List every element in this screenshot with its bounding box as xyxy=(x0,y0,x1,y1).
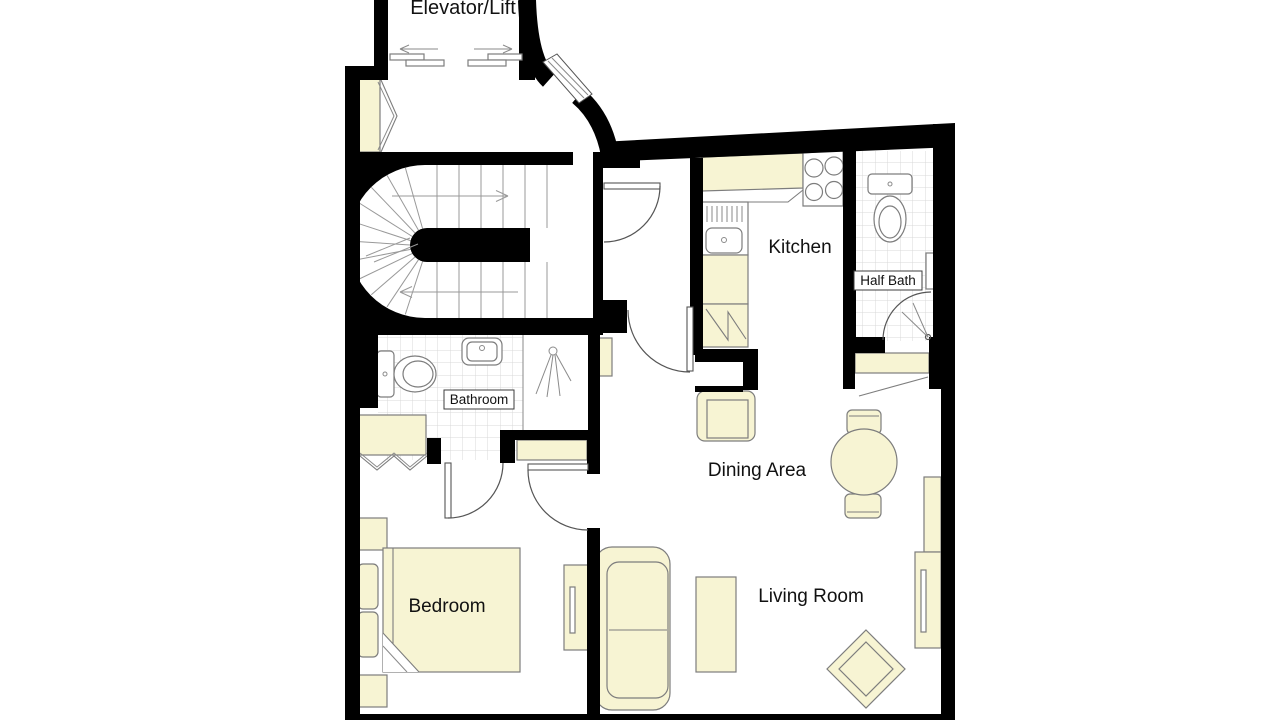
bedroom-closet xyxy=(358,415,427,470)
kitchen-counter-low xyxy=(702,255,748,304)
hall-dining-door xyxy=(628,307,693,372)
bedroom-tv-cabinet xyxy=(564,565,588,650)
entry-closet xyxy=(354,78,397,152)
nightstand xyxy=(357,675,387,707)
entry-door xyxy=(604,183,660,242)
bathroom-label: Bathroom xyxy=(444,390,514,409)
tv-icon xyxy=(921,570,926,632)
hall-shelf xyxy=(598,338,612,376)
svg-text:Bathroom: Bathroom xyxy=(450,392,509,407)
floorplan-page: Elevator/Lift Kitchen Half Bath Bathroom… xyxy=(0,0,1280,720)
accent-chair xyxy=(827,630,905,708)
fridge-icon xyxy=(702,304,748,347)
stair-core xyxy=(410,228,530,262)
kitchen-label: Kitchen xyxy=(768,237,831,258)
shower-icon xyxy=(536,347,571,397)
pillow xyxy=(358,564,378,609)
dining-armchair xyxy=(697,391,755,441)
living-tv-cabinet xyxy=(915,552,941,648)
bedroom-label: Bedroom xyxy=(408,596,485,617)
sofa-icon xyxy=(595,547,670,710)
dining-label: Dining Area xyxy=(708,460,807,481)
coffee-table xyxy=(696,577,736,672)
wall-cabinet xyxy=(924,477,941,552)
bathroom-sink-icon xyxy=(462,338,502,365)
dining-table xyxy=(831,429,897,495)
hall-cabinet xyxy=(517,440,587,460)
kitchen-sink-unit xyxy=(702,202,748,255)
sink-icon xyxy=(706,228,742,253)
staircase xyxy=(345,152,603,335)
bathroom-door xyxy=(445,463,503,518)
half-bath-label: Half Bath xyxy=(854,271,922,290)
floorplan-canvas: Elevator/Lift Kitchen Half Bath Bathroom… xyxy=(0,0,1280,720)
living-label: Living Room xyxy=(758,586,864,607)
tv-icon xyxy=(570,587,575,633)
dining-closet xyxy=(855,353,929,396)
nightstand xyxy=(357,518,387,550)
svg-text:Half Bath: Half Bath xyxy=(860,273,916,288)
elevator-label: Elevator/Lift xyxy=(410,0,516,19)
elevator-doors-icon xyxy=(390,45,522,66)
kitchen-counter-top xyxy=(702,153,803,202)
pillow xyxy=(358,612,378,657)
dining-table-set xyxy=(831,410,897,518)
bedroom-door xyxy=(528,464,588,530)
stove-icon xyxy=(803,150,843,206)
